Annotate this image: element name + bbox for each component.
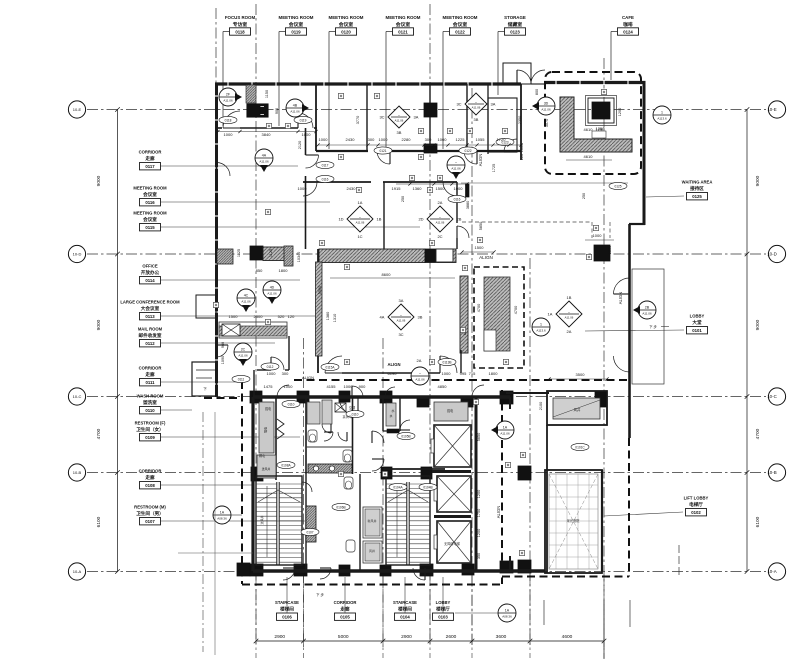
svg-text:A11.06: A11.06 bbox=[436, 221, 445, 225]
svg-text:MEETING ROOM: MEETING ROOM bbox=[443, 15, 478, 20]
svg-text:10-E: 10-E bbox=[767, 107, 776, 112]
svg-text:会议室: 会议室 bbox=[288, 21, 304, 28]
svg-text:1000: 1000 bbox=[593, 233, 603, 238]
svg-text:10-A: 10-A bbox=[767, 569, 776, 574]
svg-text:A11.06: A11.06 bbox=[397, 319, 406, 323]
svg-text:0120: 0120 bbox=[341, 30, 351, 35]
svg-text:RESTROOM (F): RESTROOM (F) bbox=[135, 421, 166, 426]
svg-text:A08.36: A08.36 bbox=[502, 615, 512, 619]
svg-text:MEETING ROOM: MEETING ROOM bbox=[279, 15, 314, 20]
svg-text:A11.06: A11.06 bbox=[451, 167, 461, 171]
svg-text:盥洗室: 盥洗室 bbox=[143, 399, 157, 406]
svg-text:10340: 10340 bbox=[297, 252, 301, 263]
svg-text:专访室: 专访室 bbox=[233, 21, 248, 28]
svg-text:1915: 1915 bbox=[392, 186, 402, 191]
svg-text:A11.06: A11.06 bbox=[223, 99, 233, 103]
svg-text:0108A: 0108A bbox=[281, 463, 291, 467]
svg-text:2B: 2B bbox=[457, 217, 462, 222]
svg-text:1B: 1B bbox=[377, 217, 382, 222]
svg-text:A11.06: A11.06 bbox=[290, 110, 300, 114]
svg-text:0106: 0106 bbox=[282, 615, 292, 620]
svg-text:3D: 3D bbox=[544, 102, 549, 106]
svg-text:800: 800 bbox=[535, 89, 539, 95]
svg-text:3A: 3A bbox=[414, 115, 419, 120]
svg-text:风井: 风井 bbox=[574, 407, 581, 412]
svg-text:3770: 3770 bbox=[356, 116, 360, 124]
svg-text:0101: 0101 bbox=[692, 328, 702, 333]
svg-text:0110: 0110 bbox=[145, 408, 155, 413]
svg-text:CORRIDOR: CORRIDOR bbox=[139, 150, 162, 155]
svg-text:1500: 1500 bbox=[436, 186, 446, 191]
svg-text:0113: 0113 bbox=[145, 314, 155, 319]
svg-text:0117: 0117 bbox=[145, 164, 155, 169]
svg-text:10-C: 10-C bbox=[767, 394, 777, 399]
svg-text:9000: 9000 bbox=[755, 175, 761, 186]
svg-text:10-C: 10-C bbox=[73, 394, 82, 399]
svg-text:送风井: 送风井 bbox=[259, 515, 264, 524]
svg-text:4700: 4700 bbox=[96, 428, 102, 439]
svg-text:–: – bbox=[400, 313, 402, 317]
svg-text:1: 1 bbox=[540, 323, 542, 327]
svg-text:0114: 0114 bbox=[145, 278, 155, 283]
svg-text:ALIGN: ALIGN bbox=[496, 506, 501, 519]
svg-text:1A: 1A bbox=[505, 609, 510, 613]
svg-text:1000: 1000 bbox=[298, 186, 308, 191]
svg-text:2A: 2A bbox=[438, 200, 443, 205]
svg-text:900: 900 bbox=[275, 108, 279, 114]
svg-text:10-D: 10-D bbox=[73, 252, 82, 257]
svg-text:4700: 4700 bbox=[514, 306, 518, 314]
svg-text:1000: 1000 bbox=[379, 137, 389, 142]
svg-text:0116: 0116 bbox=[454, 197, 461, 201]
svg-text:1000: 1000 bbox=[267, 371, 277, 376]
svg-text:下 步: 下 步 bbox=[649, 324, 657, 329]
svg-text:2430: 2430 bbox=[347, 186, 357, 191]
svg-text:5650: 5650 bbox=[477, 433, 481, 441]
svg-text:3B: 3B bbox=[418, 315, 423, 320]
svg-text:A11.06: A11.06 bbox=[565, 316, 574, 320]
svg-text:风井: 风井 bbox=[369, 548, 375, 553]
svg-text:1000: 1000 bbox=[284, 384, 294, 389]
svg-text:卫生间（男）: 卫生间（男） bbox=[136, 510, 164, 517]
svg-text:1A: 1A bbox=[503, 426, 508, 430]
svg-text:–: – bbox=[475, 100, 477, 104]
svg-text:960: 960 bbox=[221, 342, 225, 348]
svg-text:0119: 0119 bbox=[291, 30, 301, 35]
svg-text:0113B: 0113B bbox=[443, 360, 452, 364]
svg-text:LOBBY: LOBBY bbox=[690, 314, 705, 319]
svg-text:会议室: 会议室 bbox=[142, 216, 157, 223]
svg-text:0104A: 0104A bbox=[393, 485, 403, 489]
svg-text:0119: 0119 bbox=[300, 118, 307, 122]
svg-text:300: 300 bbox=[425, 137, 432, 142]
svg-text:A11.06: A11.06 bbox=[241, 300, 251, 304]
svg-text:送风井: 送风井 bbox=[262, 467, 271, 471]
svg-text:0111: 0111 bbox=[145, 380, 155, 385]
svg-text:250: 250 bbox=[401, 196, 405, 202]
svg-text:1750: 1750 bbox=[477, 509, 481, 517]
svg-text:2600: 2600 bbox=[446, 634, 457, 640]
svg-text:1090: 1090 bbox=[221, 356, 225, 364]
svg-text:10-B: 10-B bbox=[767, 470, 776, 475]
svg-text:0112: 0112 bbox=[267, 365, 274, 369]
svg-text:0115: 0115 bbox=[145, 225, 155, 230]
svg-text:0102: 0102 bbox=[691, 510, 701, 515]
svg-text:0118: 0118 bbox=[225, 118, 232, 122]
svg-text:大堂: 大堂 bbox=[692, 319, 702, 326]
svg-text:3500: 3500 bbox=[576, 372, 586, 377]
svg-text:1310: 1310 bbox=[333, 314, 337, 322]
svg-text:9000: 9000 bbox=[96, 319, 102, 330]
svg-text:空调: 空调 bbox=[349, 405, 355, 410]
svg-text:1360: 1360 bbox=[413, 186, 423, 191]
svg-text:0111: 0111 bbox=[238, 377, 245, 381]
svg-text:FOCUS ROOM: FOCUS ROOM bbox=[225, 15, 256, 20]
svg-text:A08.36: A08.36 bbox=[217, 517, 227, 521]
svg-text:2A: 2A bbox=[567, 329, 572, 334]
svg-text:995: 995 bbox=[460, 371, 467, 376]
svg-text:3A: 3A bbox=[399, 298, 404, 303]
svg-text:MEETING ROOM: MEETING ROOM bbox=[133, 186, 167, 191]
svg-text:1475: 1475 bbox=[264, 384, 274, 389]
svg-text:A11.06: A11.06 bbox=[395, 119, 404, 123]
svg-text:1225: 1225 bbox=[456, 137, 466, 142]
svg-text:1000: 1000 bbox=[224, 132, 234, 137]
svg-text:6100: 6100 bbox=[96, 516, 102, 527]
svg-text:走廊: 走廊 bbox=[339, 606, 350, 613]
svg-text:0105: 0105 bbox=[340, 615, 350, 620]
svg-text:走廊: 走廊 bbox=[144, 474, 155, 481]
svg-text:0122: 0122 bbox=[464, 149, 471, 153]
svg-text:120: 120 bbox=[288, 314, 295, 319]
svg-text:2430: 2430 bbox=[346, 137, 356, 142]
svg-text:2350: 2350 bbox=[518, 116, 522, 124]
svg-text:1200: 1200 bbox=[618, 108, 622, 116]
svg-text:A113.6: A113.6 bbox=[536, 329, 546, 333]
svg-text:0118: 0118 bbox=[235, 30, 245, 35]
svg-text:9000: 9000 bbox=[755, 319, 761, 330]
svg-text:接待区: 接待区 bbox=[690, 185, 704, 192]
svg-text:1720: 1720 bbox=[497, 137, 507, 142]
svg-text:会议室: 会议室 bbox=[338, 21, 354, 28]
svg-text:开放办公: 开放办公 bbox=[141, 269, 160, 276]
svg-text:8600: 8600 bbox=[382, 272, 392, 277]
svg-text:3C: 3C bbox=[456, 102, 461, 107]
svg-text:0124: 0124 bbox=[623, 30, 633, 35]
svg-text:1250: 1250 bbox=[596, 126, 606, 131]
svg-text:LARGE CONFERENCE ROOM: LARGE CONFERENCE ROOM bbox=[120, 300, 180, 305]
svg-text:2C: 2C bbox=[241, 348, 246, 352]
svg-text:4C: 4C bbox=[244, 294, 249, 298]
svg-text:A11.06: A11.06 bbox=[267, 292, 277, 296]
svg-text:1055: 1055 bbox=[476, 137, 486, 142]
svg-text:300: 300 bbox=[368, 137, 375, 142]
svg-text:A11.06: A11.06 bbox=[238, 354, 248, 358]
svg-text:走廊: 走廊 bbox=[144, 371, 155, 378]
svg-text:下: 下 bbox=[203, 387, 207, 391]
svg-text:6100: 6100 bbox=[755, 516, 761, 527]
svg-text:1300: 1300 bbox=[608, 246, 612, 254]
svg-text:3880: 3880 bbox=[466, 201, 470, 209]
svg-text:0106B: 0106B bbox=[336, 505, 345, 509]
svg-text:2A: 2A bbox=[417, 358, 422, 363]
svg-text:MAIL ROOM: MAIL ROOM bbox=[138, 327, 163, 332]
svg-text:1500: 1500 bbox=[229, 314, 239, 319]
svg-text:–: – bbox=[398, 113, 400, 117]
svg-text:强电: 强电 bbox=[265, 406, 272, 411]
svg-text:1000: 1000 bbox=[319, 137, 329, 142]
svg-text:走廊: 走廊 bbox=[144, 155, 155, 162]
svg-text:A11.06: A11.06 bbox=[415, 378, 425, 382]
svg-text:0112: 0112 bbox=[145, 341, 155, 346]
svg-text:10-D: 10-D bbox=[767, 252, 777, 257]
svg-text:1B: 1B bbox=[567, 295, 572, 300]
svg-text:A113.6: A113.6 bbox=[657, 117, 667, 121]
svg-text:0121: 0121 bbox=[379, 149, 386, 153]
svg-text:ALIGN: ALIGN bbox=[479, 255, 493, 260]
svg-text:弱电: 弱电 bbox=[259, 453, 266, 458]
svg-text:1500: 1500 bbox=[475, 245, 485, 250]
svg-text:–: – bbox=[568, 310, 570, 314]
svg-text:A11.06: A11.06 bbox=[259, 160, 269, 164]
svg-text:3C: 3C bbox=[398, 332, 403, 337]
svg-text:RESTROOM (M): RESTROOM (M) bbox=[134, 505, 166, 510]
svg-text:4610: 4610 bbox=[584, 127, 594, 132]
svg-text:0125: 0125 bbox=[614, 184, 621, 188]
svg-text:4B: 4B bbox=[293, 104, 298, 108]
svg-text:1125: 1125 bbox=[237, 249, 241, 257]
svg-text:0115A: 0115A bbox=[326, 365, 336, 369]
svg-text:4600: 4600 bbox=[562, 634, 573, 640]
svg-text:1000: 1000 bbox=[442, 371, 452, 376]
svg-text:LIFT LOBBY: LIFT LOBBY bbox=[684, 496, 709, 501]
svg-text:2100: 2100 bbox=[539, 402, 543, 410]
svg-text:0109: 0109 bbox=[145, 435, 155, 440]
svg-text:0110: 0110 bbox=[288, 402, 295, 406]
svg-text:1A: 1A bbox=[548, 312, 553, 317]
svg-text:卫生间（女）: 卫生间（女） bbox=[136, 426, 164, 433]
svg-text:CAFE: CAFE bbox=[622, 15, 634, 20]
svg-text:350: 350 bbox=[477, 553, 481, 559]
svg-text:MEETING ROOM: MEETING ROOM bbox=[133, 211, 167, 216]
svg-text:2120: 2120 bbox=[298, 141, 302, 149]
svg-text:–: – bbox=[439, 215, 441, 219]
svg-text:茶水间: 茶水间 bbox=[342, 414, 351, 419]
svg-text:4700: 4700 bbox=[755, 428, 761, 439]
svg-text:10-A: 10-A bbox=[73, 569, 82, 574]
svg-text:4155: 4155 bbox=[327, 384, 337, 389]
svg-text:1725: 1725 bbox=[492, 164, 496, 172]
svg-text:采光府院: 采光府院 bbox=[567, 518, 581, 523]
svg-text:2900: 2900 bbox=[401, 634, 412, 640]
svg-text:储藏室: 储藏室 bbox=[507, 21, 523, 28]
svg-text:1125: 1125 bbox=[269, 249, 273, 257]
svg-text:邮件收发室: 邮件收发室 bbox=[139, 332, 162, 339]
svg-text:2B: 2B bbox=[645, 306, 650, 310]
svg-text:2280: 2280 bbox=[402, 137, 412, 142]
svg-text:3A: 3A bbox=[491, 102, 496, 107]
svg-text:5000: 5000 bbox=[338, 634, 349, 640]
svg-text:3C: 3C bbox=[379, 115, 384, 120]
svg-text:2300: 2300 bbox=[254, 314, 264, 319]
svg-text:10-B: 10-B bbox=[73, 470, 82, 475]
svg-text:1A: 1A bbox=[358, 200, 363, 205]
svg-text:0121: 0121 bbox=[398, 30, 408, 35]
svg-text:会议室: 会议室 bbox=[452, 21, 468, 28]
svg-text:水: 水 bbox=[389, 413, 392, 418]
svg-text:4610: 4610 bbox=[584, 154, 594, 159]
svg-text:A11.06: A11.06 bbox=[500, 432, 510, 436]
svg-text:2900: 2900 bbox=[274, 634, 285, 640]
svg-text:10-E: 10-E bbox=[73, 107, 82, 112]
svg-text:220: 220 bbox=[520, 154, 524, 160]
svg-text:520: 520 bbox=[278, 314, 285, 319]
svg-text:900: 900 bbox=[359, 384, 366, 389]
svg-text:大会议室: 大会议室 bbox=[141, 305, 160, 312]
svg-text:1380: 1380 bbox=[326, 312, 330, 320]
svg-text:STORAGE: STORAGE bbox=[504, 15, 526, 20]
svg-text:A11.06: A11.06 bbox=[356, 221, 365, 225]
svg-text:0116: 0116 bbox=[145, 200, 155, 205]
svg-text:会议室: 会议室 bbox=[395, 21, 411, 28]
svg-text:0123: 0123 bbox=[510, 30, 520, 35]
svg-text:1200: 1200 bbox=[477, 490, 481, 498]
svg-text:0110: 0110 bbox=[352, 412, 359, 416]
svg-text:3600: 3600 bbox=[496, 634, 507, 640]
svg-text:CORRIDOR: CORRIDOR bbox=[139, 366, 162, 371]
svg-text:ALIGN: ALIGN bbox=[302, 375, 314, 380]
svg-text:250: 250 bbox=[582, 193, 586, 199]
svg-text:1A: 1A bbox=[220, 511, 225, 515]
svg-text:0117: 0117 bbox=[322, 163, 329, 167]
svg-text:1: 1 bbox=[661, 111, 663, 115]
svg-text:0101C: 0101C bbox=[575, 445, 585, 449]
svg-text:WAITING AREA: WAITING AREA bbox=[682, 180, 713, 185]
svg-text:OFFICE: OFFICE bbox=[142, 264, 158, 269]
svg-text:0116: 0116 bbox=[322, 177, 329, 181]
svg-text:A11.06: A11.06 bbox=[642, 312, 652, 316]
svg-text:0108: 0108 bbox=[145, 483, 155, 488]
svg-text:0104: 0104 bbox=[400, 615, 410, 620]
svg-text:0125: 0125 bbox=[692, 194, 702, 199]
svg-text:4A: 4A bbox=[380, 315, 385, 320]
svg-text:4850: 4850 bbox=[438, 384, 448, 389]
svg-text:ALIGN: ALIGN bbox=[618, 292, 623, 305]
svg-text:0103: 0103 bbox=[438, 615, 448, 620]
svg-text:新风井: 新风井 bbox=[367, 518, 376, 523]
svg-text:强电: 强电 bbox=[447, 408, 454, 413]
svg-text:1000: 1000 bbox=[438, 137, 448, 142]
svg-text:3070: 3070 bbox=[545, 119, 549, 127]
svg-text:1000: 1000 bbox=[302, 132, 312, 137]
svg-text:–: – bbox=[359, 215, 361, 219]
svg-text:4D: 4D bbox=[270, 286, 275, 290]
svg-text:6190: 6190 bbox=[388, 371, 398, 376]
svg-text:A11.06: A11.06 bbox=[472, 106, 481, 110]
svg-text:0105B: 0105B bbox=[401, 434, 410, 438]
svg-text:电梯厅: 电梯厅 bbox=[689, 501, 703, 508]
svg-text:ALIGN: ALIGN bbox=[478, 154, 483, 167]
svg-text:1000: 1000 bbox=[344, 384, 354, 389]
svg-text:300: 300 bbox=[282, 371, 289, 376]
svg-text:1D: 1D bbox=[338, 217, 343, 222]
svg-text:下 步: 下 步 bbox=[316, 592, 324, 597]
svg-text:0104B: 0104B bbox=[423, 485, 432, 489]
svg-text:9000: 9000 bbox=[96, 175, 102, 186]
svg-text:A11.06: A11.06 bbox=[541, 108, 551, 112]
svg-text:–: – bbox=[455, 161, 457, 165]
svg-text:2C: 2C bbox=[437, 234, 442, 239]
svg-text:3B: 3B bbox=[474, 117, 479, 122]
svg-text:MEETING ROOM: MEETING ROOM bbox=[386, 15, 421, 20]
svg-text:无障碍电梯: 无障碍电梯 bbox=[444, 541, 461, 546]
svg-text:4700: 4700 bbox=[477, 304, 481, 312]
svg-text:850: 850 bbox=[256, 268, 263, 273]
svg-text:–: – bbox=[419, 372, 421, 376]
svg-text:WASH ROOM: WASH ROOM bbox=[137, 394, 164, 399]
svg-text:2D: 2D bbox=[418, 217, 423, 222]
svg-text:1200: 1200 bbox=[477, 529, 481, 537]
svg-text:3B: 3B bbox=[397, 130, 402, 135]
svg-text:5500: 5500 bbox=[318, 286, 322, 294]
svg-text:4A: 4A bbox=[262, 154, 267, 158]
svg-text:1800: 1800 bbox=[489, 371, 499, 376]
svg-text:1800: 1800 bbox=[279, 268, 289, 273]
svg-text:1150: 1150 bbox=[265, 90, 269, 98]
svg-text:1000: 1000 bbox=[454, 186, 464, 191]
svg-text:0107: 0107 bbox=[145, 519, 155, 524]
svg-text:0122: 0122 bbox=[455, 30, 465, 35]
svg-text:MEETING ROOM: MEETING ROOM bbox=[329, 15, 364, 20]
svg-text:0107: 0107 bbox=[306, 530, 313, 534]
svg-text:会议室: 会议室 bbox=[142, 191, 157, 198]
svg-text:咖啡: 咖啡 bbox=[623, 21, 633, 28]
svg-text:715: 715 bbox=[469, 371, 476, 376]
svg-text:CORRIDOR: CORRIDOR bbox=[139, 469, 162, 474]
svg-text:ALIGN: ALIGN bbox=[387, 362, 400, 367]
svg-text:5850: 5850 bbox=[479, 222, 483, 230]
svg-text:强电: 强电 bbox=[263, 427, 268, 433]
svg-text:3840: 3840 bbox=[262, 132, 272, 137]
svg-text:1C: 1C bbox=[357, 234, 362, 239]
